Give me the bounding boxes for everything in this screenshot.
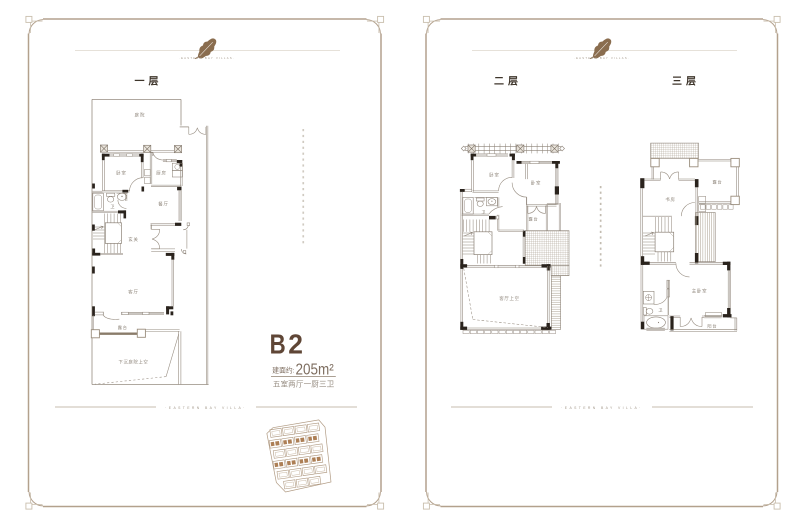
svg-text:主卧室: 主卧室 [692,288,708,295]
svg-text:餐厅: 餐厅 [158,200,168,207]
svg-text:卫: 卫 [658,308,662,313]
svg-text:·EASTERN BAY VILLA·: ·EASTERN BAY VILLA· [561,406,642,410]
svg-text:二层: 二层 [494,76,522,88]
svg-text:卧室: 卧室 [531,179,541,186]
svg-text:五室两厅一厨三卫: 五室两厅一厨三卫 [273,378,335,388]
svg-text:一层: 一层 [135,76,163,88]
svg-text:2: 2 [288,328,303,360]
svg-text:客厅: 客厅 [128,288,138,295]
svg-text:卫: 卫 [481,210,485,215]
svg-text:下沉庭院上空: 下沉庭院上空 [119,358,149,365]
svg-text:玄关: 玄关 [128,236,138,243]
svg-text:B: B [270,329,286,360]
svg-text:阳台: 阳台 [707,322,717,329]
svg-text:露台: 露台 [529,216,539,223]
svg-text:·EASTERN BAY VILLAS·: ·EASTERN BAY VILLAS· [574,56,630,60]
svg-text:·EASTERN BAY VILLA·: ·EASTERN BAY VILLA· [165,406,246,410]
svg-text:建面约:: 建面约: [272,366,294,375]
svg-text:庭院: 庭院 [135,112,146,119]
svg-text:卧室: 卧室 [489,171,499,178]
svg-text:·EASTERN BAY VILLAS·: ·EASTERN BAY VILLAS· [179,56,235,60]
svg-text:书房: 书房 [665,196,675,203]
svg-text:露台: 露台 [713,179,723,186]
svg-text:卫: 卫 [110,204,114,209]
svg-text:客厅上空: 客厅上空 [499,295,519,302]
svg-text:露台: 露台 [118,324,128,331]
svg-text:卧室: 卧室 [116,170,126,177]
svg-text:厨房: 厨房 [156,170,166,177]
svg-text:三层: 三层 [672,76,700,88]
